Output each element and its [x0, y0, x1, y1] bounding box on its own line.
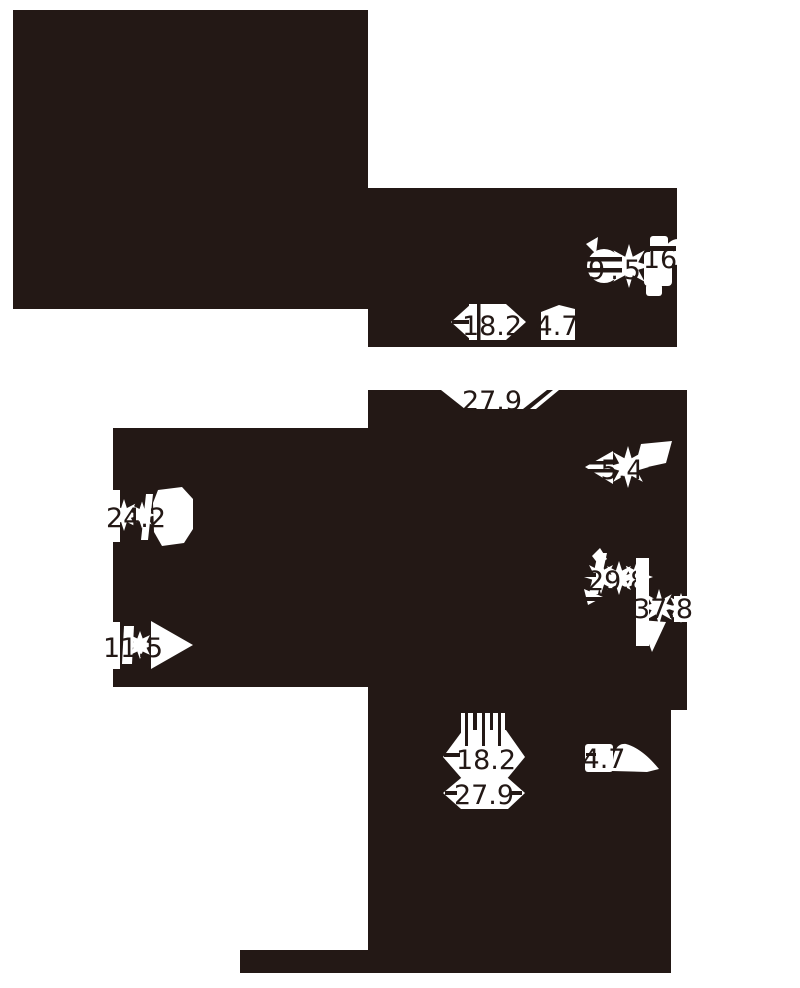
dim-label-18-2-bottom: 18.2: [456, 745, 516, 776]
extension-line: [498, 712, 501, 746]
dim-label-24-2: 24.2: [106, 503, 166, 534]
halo-step: [646, 284, 662, 296]
callout-27-9-bottom: 27.9: [443, 778, 525, 811]
dim-label-5-4: 5.4: [601, 455, 644, 486]
dim-label-4-7-top: 4.7: [536, 311, 579, 342]
dim-label-4-7-bottom: 4.7: [583, 744, 626, 775]
region-top-left: [13, 10, 368, 309]
extension-line: [482, 712, 485, 746]
dim-label-37-8: 37.8: [633, 594, 693, 625]
screenshot-root: 9.5 16 18.2 4.7 27.9 5.4: [0, 0, 800, 988]
dim-label-16: 16: [643, 244, 677, 275]
dim-label-9-5: 9.5: [588, 255, 646, 286]
leader-line: [584, 597, 604, 601]
dim-label-27-9-bottom: 27.9: [454, 780, 514, 811]
drawing-canvas: 9.5 16 18.2 4.7 27.9 5.4: [0, 0, 800, 988]
dim-label-27-9-top: 27.9: [462, 386, 522, 417]
dim-label-18-2-top: 18.2: [462, 311, 522, 342]
region-bottom-strip: [240, 950, 671, 973]
dim-label-11-5: 11.5: [103, 633, 163, 664]
extension-line: [465, 712, 468, 746]
callout-4-7-top: 4.7: [536, 305, 579, 342]
